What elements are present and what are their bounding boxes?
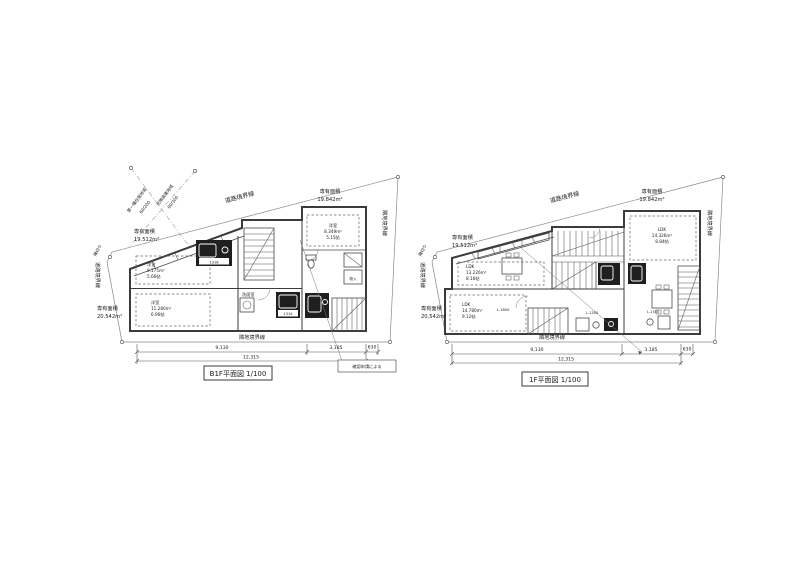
room-name: LDK xyxy=(462,302,471,307)
right-boundary-label: 隣地境界線 xyxy=(706,210,714,236)
area-label: 専有面積 xyxy=(642,187,664,195)
room-size: 6.96帖 xyxy=(151,311,165,318)
area-label: 専有面積 xyxy=(320,187,342,195)
floorplan-sheet: 1318 洗面室 1314 物入 xyxy=(0,0,800,566)
room-area: 8.349m² xyxy=(324,229,342,234)
area-value: 19.512m² xyxy=(452,243,477,249)
plan-b1f: 1318 洗面室 1314 物入 xyxy=(92,166,400,380)
bath-module-label: 1318 xyxy=(209,261,219,265)
room-size: 9.12帖 xyxy=(462,313,476,320)
room-area: 13.226m² xyxy=(466,270,487,275)
room-name: 洋室 xyxy=(147,261,155,268)
room-name: 洋室 xyxy=(151,299,159,306)
zoning-ratio-a: 60/200 xyxy=(138,199,151,214)
room-area: 14.326m² xyxy=(652,233,673,238)
kitchen-label: L-1350 xyxy=(586,311,599,315)
area-label: 専有面積 xyxy=(97,304,119,312)
dim-segment: 3,185 xyxy=(644,347,657,353)
area-value: 20.542m² xyxy=(97,314,122,320)
unit-bath-center xyxy=(598,263,620,285)
plans-drawing: 1318 洗面室 1314 物入 xyxy=(0,0,800,566)
room-name: LDK xyxy=(658,227,667,232)
area-value: 19.842m² xyxy=(639,197,664,203)
unit-bath-1314: 1314 xyxy=(276,292,300,318)
right-boundary-label: 隣地境界線 xyxy=(381,210,389,236)
dim-segment: 630 xyxy=(368,345,377,351)
room-area: 14.780m² xyxy=(462,308,483,313)
note-text: 確認申請による xyxy=(352,363,381,370)
left-boundary-label: 道路境界線 xyxy=(419,262,427,288)
bottom-boundary-label: 隣地境界線 xyxy=(239,333,265,341)
dim-total: 12,315 xyxy=(558,357,574,363)
storage-label: 物入 xyxy=(349,276,357,281)
unit-bath-1318: 1318 xyxy=(196,240,232,266)
corner-cut-label: 隅切り xyxy=(417,243,429,257)
room-area: 11.280m² xyxy=(151,306,172,311)
area-label: 専有面積 xyxy=(421,304,443,312)
area-value: 20.542m² xyxy=(421,314,446,320)
bath-module-label: 1314 xyxy=(283,312,293,316)
room-size: 8.16帖 xyxy=(466,275,480,282)
plan-1f: 道路境界線 隅切り 道路境界線 隣地境界線 隣地境界線 専有面積 19.842m… xyxy=(417,175,725,386)
plan-title: B1F平面図 1/100 xyxy=(210,370,267,378)
dim-total: 12,315 xyxy=(243,355,259,361)
washroom-label: 洗面室 xyxy=(242,291,255,298)
unit-bath-right xyxy=(628,263,646,284)
room-size: 8.84帖 xyxy=(655,238,669,245)
bottom-boundary-label: 隣地境界線 xyxy=(539,333,565,341)
dim-segment: 9,130 xyxy=(530,347,543,353)
kitchen-label: L-1350 xyxy=(647,310,660,314)
room-name: 洋室 xyxy=(329,222,337,229)
corner-cut-label: 隅切り xyxy=(92,243,104,257)
dim-segment: 3,185 xyxy=(329,345,342,351)
room-area: 9.175m² xyxy=(147,268,165,273)
room-size: 5.15帖 xyxy=(326,234,340,241)
road-boundary-label: 道路境界線 xyxy=(224,189,255,204)
area-label: 専有面積 xyxy=(452,233,474,241)
dim-segment: 630 xyxy=(683,347,692,353)
kitchen-label: L-1800 xyxy=(497,308,510,312)
road-boundary-label: 道路境界線 xyxy=(549,189,580,204)
area-value: 19.512m² xyxy=(134,237,159,243)
left-boundary-label: 道路境界線 xyxy=(94,262,102,288)
room-name: LDK xyxy=(466,264,475,269)
plan-title: 1F平面図 1/100 xyxy=(529,376,581,384)
dim-segment: 9,130 xyxy=(215,345,228,351)
room-size: 5.66帖 xyxy=(147,273,161,280)
area-label: 専有面積 xyxy=(134,227,156,235)
unit-bath-right xyxy=(305,293,329,318)
area-value: 19.842m² xyxy=(317,197,342,203)
